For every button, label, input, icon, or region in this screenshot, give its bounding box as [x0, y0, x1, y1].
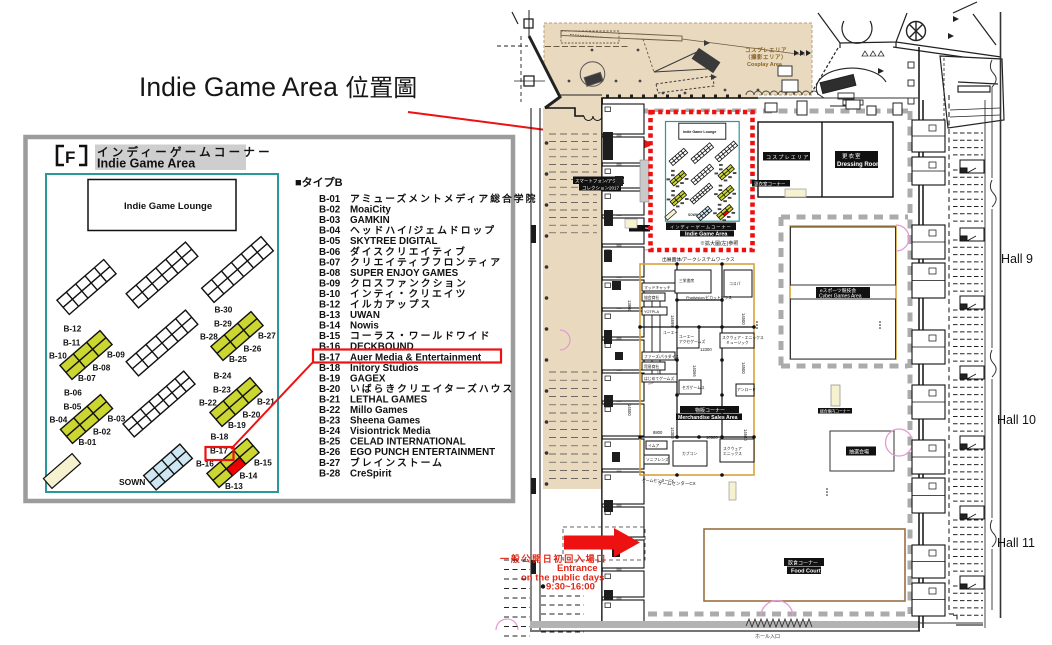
svg-text:B-15: B-15 [254, 459, 272, 468]
svg-text:14600: 14600 [743, 429, 748, 441]
svg-text:B-24: B-24 [319, 426, 341, 437]
svg-text:14500: 14500 [741, 362, 746, 374]
svg-text:B-28: B-28 [319, 468, 341, 479]
svg-text:B-12: B-12 [64, 325, 82, 334]
svg-text:アミューズメントメディア総合学院: アミューズメントメディア総合学院 [350, 192, 537, 205]
svg-text:B-25: B-25 [319, 437, 341, 448]
svg-text:B-06: B-06 [319, 247, 341, 258]
svg-text:スクウェア・エニックス: スクウェア・エニックス [722, 335, 764, 340]
svg-text:B-27: B-27 [258, 332, 276, 341]
svg-text:GAMKIN: GAMKIN [350, 215, 390, 226]
svg-text:CELAD INTERNATIONAL: CELAD INTERNATIONAL [350, 437, 466, 448]
svg-text:13800: 13800 [627, 300, 632, 312]
svg-text:ソニフレンズ: ソニフレンズ [646, 457, 669, 462]
svg-text:Indie Game Lounge: Indie Game Lounge [683, 130, 716, 134]
svg-text:B-26: B-26 [244, 345, 262, 354]
svg-text:B-10: B-10 [49, 352, 67, 361]
svg-text:B-15: B-15 [319, 331, 341, 342]
svg-text:B-03: B-03 [319, 215, 341, 226]
svg-text:B-13: B-13 [319, 310, 341, 321]
svg-text:8800: 8800 [653, 430, 663, 435]
svg-text:コスパ: コスパ [729, 281, 741, 286]
svg-text:B-09: B-09 [107, 351, 125, 360]
svg-text:B-01: B-01 [319, 194, 341, 205]
svg-text:B-22: B-22 [319, 405, 341, 416]
svg-text:LETHAL GAMES: LETHAL GAMES [350, 395, 428, 406]
svg-text:B-14: B-14 [240, 472, 258, 481]
svg-text:B-13: B-13 [225, 482, 243, 491]
svg-text:はじめてゲームズ: はじめてゲームズ [644, 376, 674, 381]
svg-text:B-18: B-18 [211, 433, 229, 442]
svg-text:カプコン: カプコン [682, 451, 697, 456]
svg-text:三栄書房: 三栄書房 [679, 278, 694, 283]
svg-text:Indie Game Area: Indie Game Area [97, 157, 196, 171]
svg-text:Cyber Games Area: Cyber Games Area [819, 294, 862, 300]
svg-text:UWAN: UWAN [350, 310, 380, 321]
svg-text:B-08: B-08 [319, 268, 341, 279]
svg-text:B-20: B-20 [319, 384, 341, 395]
svg-text:Indie Game Lounge: Indie Game Lounge [124, 201, 212, 212]
svg-text:Hall 9: Hall 9 [1001, 252, 1033, 266]
svg-text:物販コーナー: 物販コーナー [695, 407, 725, 414]
svg-text:B-27: B-27 [319, 458, 341, 469]
svg-text:SOWN: SOWN [688, 213, 699, 217]
svg-text:B-04: B-04 [319, 226, 341, 237]
svg-text:飲食コーナー: 飲食コーナー [788, 560, 818, 567]
svg-text:EGO PUNCH ENTERTAINMENT: EGO PUNCH ENTERTAINMENT [350, 447, 495, 458]
svg-text:ゲームセンターCX: ゲームセンターCX [658, 480, 696, 487]
svg-text:Food Court: Food Court [791, 569, 821, 575]
svg-text:■タイプB: ■タイプB [295, 175, 343, 189]
svg-text:貿易商社: 貿易商社 [644, 364, 659, 369]
svg-text:GAGEX: GAGEX [350, 373, 386, 384]
svg-text:Sheena Games: Sheena Games [350, 416, 421, 427]
svg-text:イルカアップス: イルカアップス [350, 298, 432, 311]
svg-text:イムア: イムア [648, 443, 660, 448]
svg-text:ダイスクリエイティブ: ダイスクリエイティブ [350, 245, 467, 258]
svg-text:14500: 14500 [741, 313, 746, 325]
svg-text:マッドキャッチ: マッドキャッチ [644, 285, 671, 290]
svg-text:CreSpirit: CreSpirit [350, 468, 392, 479]
svg-text:14066: 14066 [692, 365, 697, 377]
svg-text:Hall 11: Hall 11 [997, 536, 1035, 550]
svg-text:抽選会場: 抽選会場 [849, 449, 869, 456]
svg-text:B-02: B-02 [93, 428, 111, 437]
svg-text:B-23: B-23 [213, 386, 231, 395]
svg-text:B-29: B-29 [214, 320, 232, 329]
svg-text:B-08: B-08 [93, 364, 111, 373]
svg-text:コスプレエリア: コスプレエリア [766, 155, 809, 161]
svg-text:ユーエー: ユーエー [679, 335, 694, 339]
svg-text:SOWN: SOWN [119, 477, 145, 487]
svg-text:B-28: B-28 [200, 333, 218, 342]
svg-text:B-11: B-11 [63, 339, 81, 348]
svg-text:Visiontrick Media: Visiontrick Media [350, 426, 431, 437]
svg-text:セガゲームス: セガゲームス [682, 385, 705, 390]
svg-text:Initory Studios: Initory Studios [350, 363, 419, 374]
svg-text:インディーゲームコーナー: インディーゲームコーナー [670, 223, 732, 230]
svg-text:エニックス: エニックス [723, 451, 742, 456]
svg-text:ファーズ/パラダイス: ファーズ/パラダイス [644, 354, 679, 359]
svg-text:DECKBOUND: DECKBOUND [350, 342, 414, 353]
svg-text:Cosplay Area: Cosplay Area [747, 62, 783, 68]
svg-text:クロスファンクション: クロスファンクション [350, 277, 468, 289]
svg-text:F: F [65, 148, 75, 167]
svg-text:ヘッドハイ/ジェムドロップ: ヘッドハイ/ジェムドロップ [350, 224, 496, 237]
svg-text:MoaiCity: MoaiCity [350, 205, 391, 216]
svg-text:スクウェア: スクウェア [723, 446, 742, 451]
svg-text:B-10: B-10 [319, 289, 341, 300]
svg-text:B-07: B-07 [319, 257, 341, 268]
svg-text:B-18: B-18 [319, 363, 341, 374]
svg-text:コーラス・ワールドワイド: コーラス・ワールドワイド [350, 330, 491, 342]
svg-text:出展圖体/アークシステムワークス: 出展圖体/アークシステムワークス [662, 256, 735, 263]
svg-text:14300: 14300 [670, 427, 675, 439]
svg-text:Merchandise Sales Area: Merchandise Sales Area [678, 415, 738, 421]
svg-text:B-09: B-09 [319, 278, 341, 289]
svg-text:B-22: B-22 [199, 399, 217, 408]
svg-text:B-21: B-21 [319, 395, 341, 406]
svg-text:インティ・クリエイツ: インティ・クリエイツ [350, 288, 467, 300]
svg-text:Indie Game Area: Indie Game Area [685, 232, 728, 238]
svg-text:B-23: B-23 [319, 416, 341, 427]
svg-text:アンロード: アンロード [737, 387, 756, 392]
svg-text:ユーエー: ユーエー [663, 331, 678, 335]
svg-text:Nowis: Nowis [350, 321, 379, 332]
svg-text:SKYTREE DIGITAL: SKYTREE DIGITAL [350, 236, 437, 247]
svg-text:B-03: B-03 [108, 415, 126, 424]
svg-text:B-05: B-05 [64, 403, 82, 412]
svg-text:B-05: B-05 [319, 236, 341, 247]
svg-text:Millo Games: Millo Games [350, 405, 408, 416]
svg-text:9:30~16:00: 9:30~16:00 [546, 582, 595, 593]
svg-text:12300: 12300 [700, 347, 712, 352]
svg-text:B-07: B-07 [78, 374, 96, 383]
svg-text:いばらきクリエイターズハウス: いばらきクリエイターズハウス [350, 382, 514, 395]
svg-text:※拡大圖(左)参照: ※拡大圖(左)参照 [700, 240, 738, 247]
svg-text:Dressing Room: Dressing Room [837, 162, 881, 168]
svg-text:ブレインストーム: ブレインストーム [350, 456, 444, 469]
svg-text:B-19: B-19 [319, 373, 341, 384]
svg-text:B-30: B-30 [215, 306, 233, 315]
svg-text:協会商社: 協会商社 [644, 295, 659, 300]
svg-text:ミュージック: ミュージック [726, 340, 749, 345]
svg-text:YOTPLA: YOTPLA [644, 310, 659, 314]
svg-text:B-06: B-06 [64, 389, 82, 398]
svg-text:更衣室コーナー: 更衣室コーナー [754, 181, 786, 188]
svg-text:B-04: B-04 [50, 416, 68, 425]
svg-text:Phativision/ピカットプラス: Phativision/ピカットプラス [686, 295, 732, 300]
svg-text:更衣室: 更衣室 [842, 152, 862, 160]
svg-text:ホール入口: ホール入口 [755, 634, 780, 640]
svg-text:総合案内コーナー: 総合案内コーナー [820, 409, 851, 414]
svg-text:B-02: B-02 [319, 205, 341, 216]
svg-text:B-20: B-20 [243, 411, 261, 420]
svg-text:クリエイティブフロンティア: クリエイティブフロンティア [350, 255, 502, 268]
svg-text:B-12: B-12 [319, 300, 341, 311]
svg-text:B-14: B-14 [319, 321, 341, 332]
svg-text:SUPER ENJOY GAMES: SUPER ENJOY GAMES [350, 268, 459, 279]
svg-text:Indie Game Area 位置圖: Indie Game Area 位置圖 [139, 72, 417, 102]
svg-text:B-24: B-24 [214, 372, 232, 381]
svg-text:Hall 10: Hall 10 [997, 413, 1036, 427]
svg-text:アクセゲームズ: アクセゲームズ [679, 339, 705, 344]
svg-text:10500: 10500 [706, 435, 718, 440]
svg-text:（擈影エリア）: （擈影エリア） [745, 53, 787, 61]
svg-text:B-19: B-19 [228, 421, 246, 430]
svg-text:14699: 14699 [670, 315, 675, 327]
svg-text:B-01: B-01 [79, 438, 97, 447]
svg-text:B-26: B-26 [319, 447, 341, 458]
svg-text:B-25: B-25 [229, 355, 247, 364]
svg-text:B-16: B-16 [319, 342, 341, 353]
svg-text:14500: 14500 [627, 404, 632, 416]
svg-text:コスプレエリア: コスプレエリア [745, 46, 787, 54]
